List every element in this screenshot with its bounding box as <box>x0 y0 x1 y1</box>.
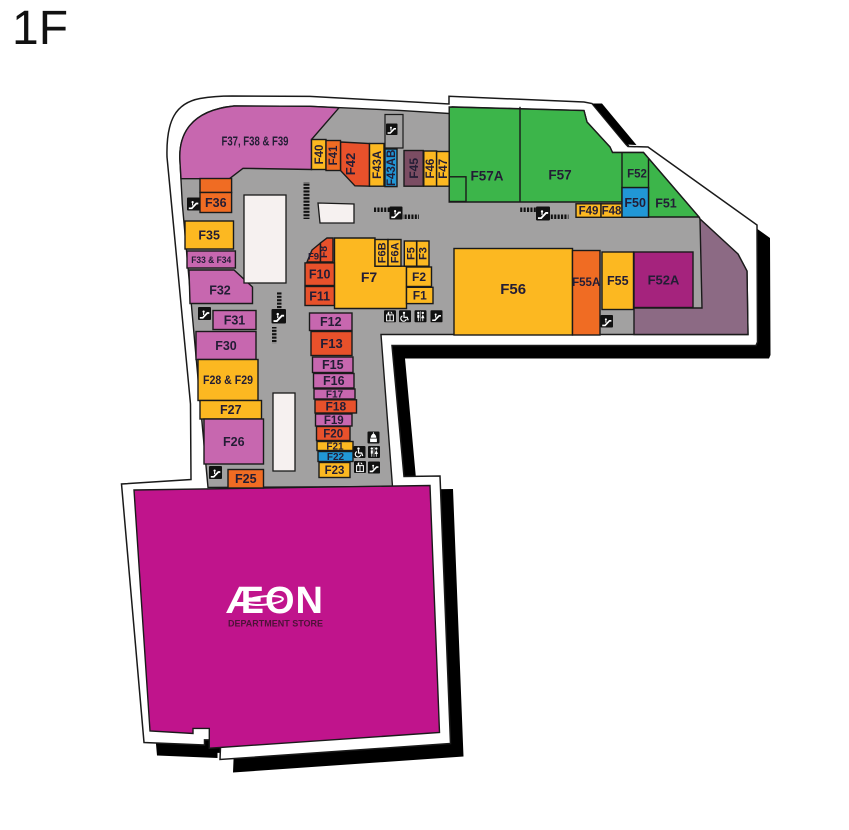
svg-text:F8: F8 <box>318 246 330 258</box>
svg-text:F19: F19 <box>324 415 344 427</box>
svg-text:F56: F56 <box>500 281 526 298</box>
svg-text:F52: F52 <box>627 169 647 181</box>
svg-text:F23: F23 <box>325 465 345 477</box>
svg-text:F20: F20 <box>323 429 343 441</box>
svg-text:F42: F42 <box>343 153 358 175</box>
svg-text:F11: F11 <box>309 289 330 303</box>
svg-text:F43AB: F43AB <box>386 150 398 186</box>
svg-text:F33 & F34: F33 & F34 <box>191 255 232 266</box>
svg-text:F28 & F29: F28 & F29 <box>203 373 253 387</box>
svg-text:F37, F38 & F39: F37, F38 & F39 <box>222 134 289 149</box>
svg-text:F41: F41 <box>328 145 340 165</box>
svg-text:F7: F7 <box>361 269 378 285</box>
svg-text:F43A: F43A <box>372 151 384 179</box>
svg-text:F55: F55 <box>607 274 629 288</box>
svg-text:F49: F49 <box>579 206 599 218</box>
svg-text:DEPARTMENT STORE: DEPARTMENT STORE <box>228 619 323 629</box>
svg-text:F3: F3 <box>418 247 430 260</box>
svg-text:F12: F12 <box>320 315 342 329</box>
svg-text:F57: F57 <box>548 168 571 183</box>
svg-text:F48: F48 <box>602 206 622 218</box>
svg-text:F55A: F55A <box>572 277 600 289</box>
svg-text:F13: F13 <box>320 336 342 351</box>
svg-text:F16: F16 <box>323 374 345 388</box>
svg-text:F35: F35 <box>198 228 220 242</box>
svg-text:F26: F26 <box>223 435 245 449</box>
svg-text:F46: F46 <box>425 159 437 179</box>
svg-text:F10: F10 <box>309 268 331 282</box>
svg-text:F6B: F6B <box>376 242 388 263</box>
svg-text:F40: F40 <box>314 145 326 165</box>
svg-text:F51: F51 <box>655 197 677 211</box>
svg-text:F25: F25 <box>235 472 257 486</box>
svg-text:F5: F5 <box>405 247 417 260</box>
svg-text:F50: F50 <box>624 196 646 210</box>
svg-text:F18: F18 <box>325 400 346 414</box>
svg-text:F6A: F6A <box>389 242 401 263</box>
svg-text:F32: F32 <box>209 284 231 298</box>
svg-text:F47: F47 <box>438 159 450 179</box>
svg-text:F31: F31 <box>224 313 246 327</box>
svg-text:F22: F22 <box>327 452 345 463</box>
svg-text:F52A: F52A <box>648 272 680 287</box>
svg-text:F1: F1 <box>413 289 427 303</box>
svg-text:1F: 1F <box>12 2 68 55</box>
svg-text:F15: F15 <box>322 358 344 372</box>
svg-text:F57A: F57A <box>470 169 503 184</box>
svg-text:F2: F2 <box>412 270 426 284</box>
svg-text:F30: F30 <box>215 339 237 353</box>
svg-text:F45: F45 <box>407 158 421 179</box>
svg-text:F36: F36 <box>205 196 227 210</box>
svg-text:ÆON: ÆON <box>226 580 324 622</box>
svg-text:F27: F27 <box>220 403 242 417</box>
